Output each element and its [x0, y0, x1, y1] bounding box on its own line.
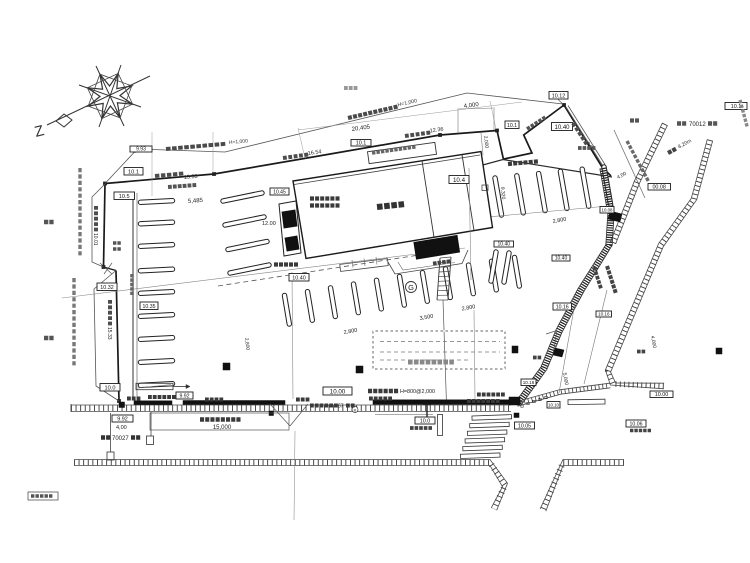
svg-text:57: 57: [338, 404, 344, 410]
svg-text:9,320: 9,320: [499, 187, 506, 200]
svg-text:10.40: 10.40: [554, 125, 570, 131]
svg-text:10.45: 10.45: [273, 189, 286, 195]
svg-text:9.92: 9.92: [117, 416, 128, 422]
svg-text:10.40: 10.40: [498, 241, 511, 247]
svg-text:H=800@2,000: H=800@2,000: [400, 389, 435, 395]
svg-text:10.32: 10.32: [100, 285, 114, 291]
svg-text:10.05: 10.05: [518, 423, 531, 429]
svg-text:10.16: 10.16: [523, 380, 535, 385]
svg-text:10.10: 10.10: [548, 402, 560, 407]
svg-text:9.93: 9.93: [136, 146, 146, 152]
svg-text:10.4: 10.4: [453, 177, 466, 184]
svg-text:10.5: 10.5: [119, 194, 130, 200]
svg-text:5,485: 5,485: [188, 198, 204, 205]
svg-text:10.08: 10.08: [602, 207, 614, 212]
svg-text:10.40: 10.40: [555, 255, 568, 261]
svg-text:70027: 70027: [112, 436, 129, 442]
svg-text:70012: 70012: [689, 122, 706, 128]
svg-text:10.1: 10.1: [356, 140, 367, 146]
svg-text:10.16: 10.16: [556, 304, 569, 310]
svg-text:15.33: 15.33: [106, 327, 112, 340]
svg-text:10.1: 10.1: [128, 169, 139, 175]
svg-text:15,000: 15,000: [213, 425, 232, 431]
svg-text:10.1: 10.1: [507, 123, 517, 129]
svg-text:10.01: 10.01: [92, 233, 98, 246]
svg-text:10.1: 10.1: [731, 104, 742, 110]
svg-text:9.92: 9.92: [179, 393, 189, 399]
svg-text:10.16: 10.16: [598, 311, 610, 316]
svg-text:4,00: 4,00: [116, 425, 127, 431]
svg-text:10.12: 10.12: [552, 93, 566, 99]
svg-text:B: B: [354, 408, 357, 413]
svg-text:10.40: 10.40: [292, 275, 306, 281]
svg-text:12.00: 12.00: [262, 221, 276, 227]
svg-text:10.00: 10.00: [655, 392, 669, 398]
svg-text:10.00: 10.00: [330, 388, 346, 395]
svg-text:00.08: 00.08: [652, 184, 666, 190]
svg-text:G: G: [408, 283, 414, 292]
svg-text:10.0: 10.0: [105, 385, 116, 391]
svg-text:15.55: 15.55: [184, 174, 198, 181]
svg-text:10.0: 10.0: [420, 418, 431, 424]
svg-text:10.35: 10.35: [143, 304, 156, 310]
svg-text:10.06: 10.06: [630, 421, 643, 427]
